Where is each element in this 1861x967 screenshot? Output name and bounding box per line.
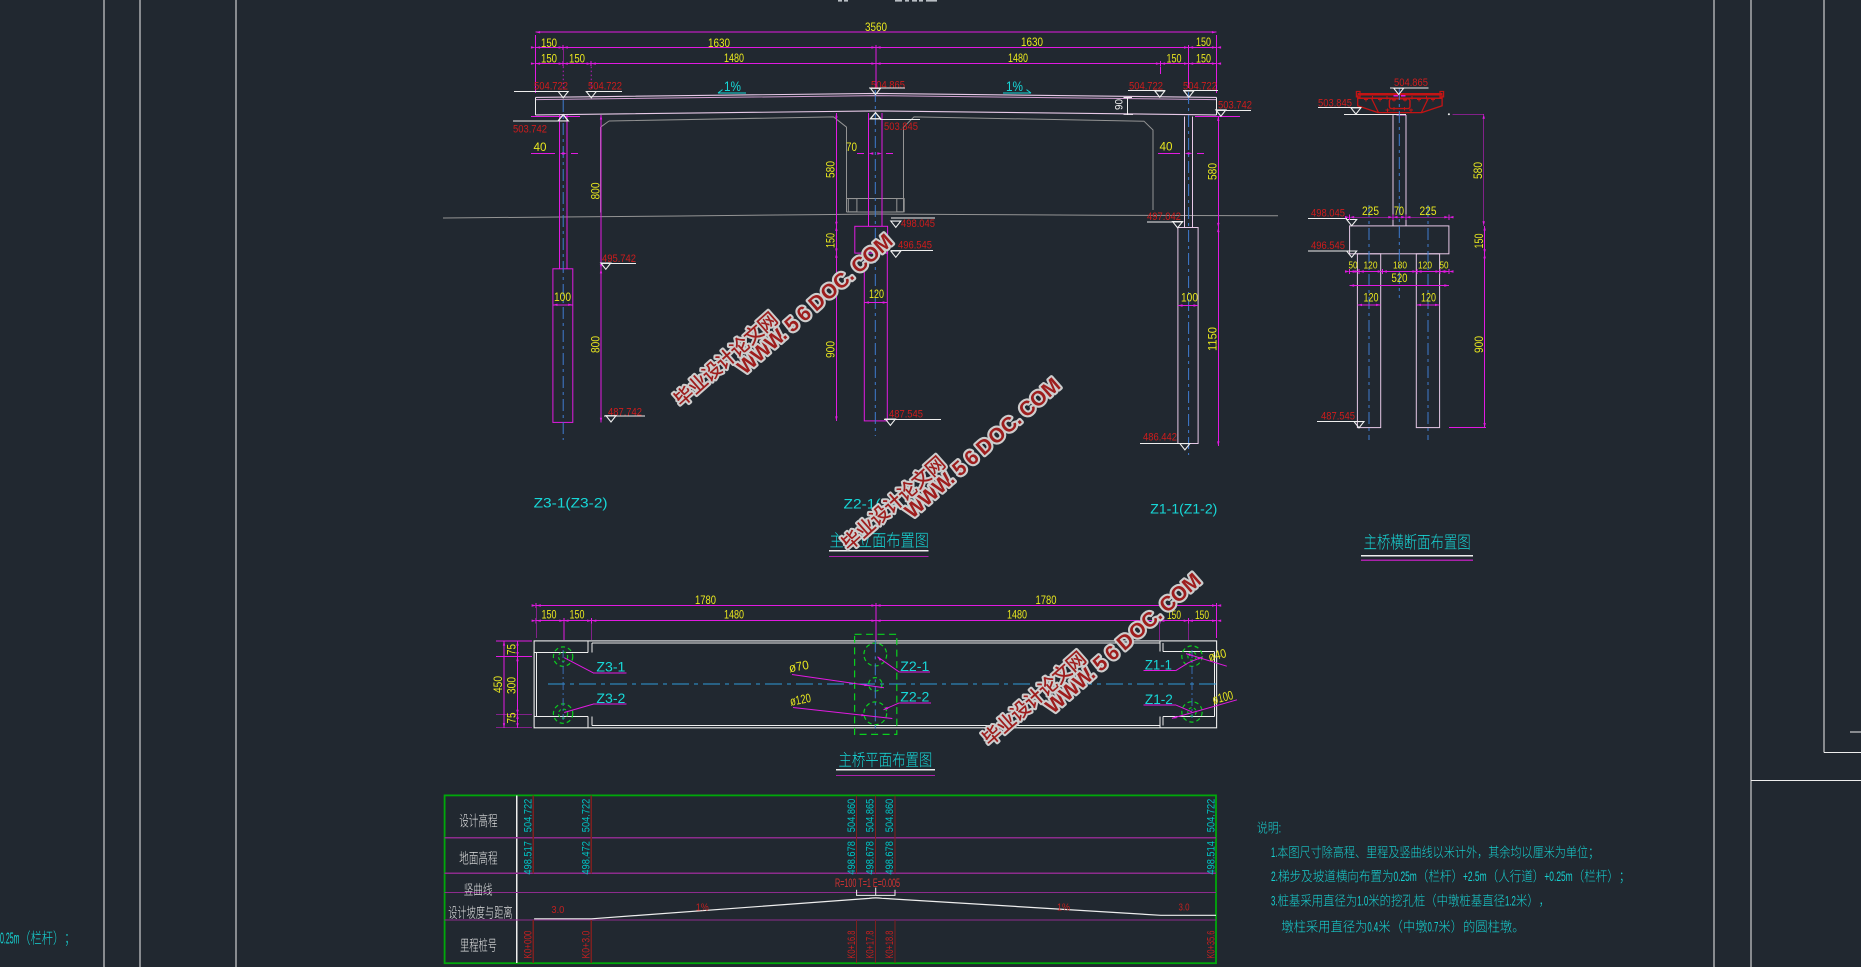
svg-text:150: 150: [1195, 608, 1209, 622]
svg-text:3.0: 3.0: [1179, 901, 1190, 913]
svg-text:K0+35.6: K0+35.6: [1205, 931, 1217, 959]
svg-text:1480: 1480: [1008, 51, 1028, 65]
svg-text:580: 580: [1206, 163, 1220, 180]
svg-text:150: 150: [1196, 52, 1211, 66]
svg-text:Z1-2: Z1-2: [1145, 691, 1173, 707]
svg-text:498.678: 498.678: [846, 841, 858, 875]
svg-text:0.7: 0.7: [1428, 919, 1439, 935]
svg-text:1630: 1630: [1021, 35, 1043, 49]
svg-text:1%: 1%: [696, 902, 709, 914]
svg-text:498.045: 498.045: [1311, 207, 1345, 219]
svg-text:150: 150: [541, 36, 557, 50]
svg-text:520: 520: [1392, 271, 1408, 285]
svg-text:580: 580: [1471, 162, 1485, 179]
svg-text:150: 150: [1472, 233, 1486, 248]
svg-text:498.678: 498.678: [865, 841, 877, 875]
svg-text:70: 70: [846, 140, 857, 154]
svg-text:K0+17.8: K0+17.8: [865, 931, 877, 959]
svg-text:504.860: 504.860: [884, 799, 896, 833]
svg-text:800: 800: [589, 336, 603, 353]
svg-text:Z3-2: Z3-2: [596, 690, 625, 706]
svg-text:0.4: 0.4: [1367, 919, 1378, 935]
svg-text::: :: [1279, 821, 1281, 836]
svg-text:498.472: 498.472: [581, 841, 593, 875]
svg-text:503.845: 503.845: [884, 121, 918, 133]
svg-text:75: 75: [505, 712, 519, 723]
svg-text:Z1-1(Z1-2): Z1-1(Z1-2): [1150, 501, 1217, 517]
svg-text:1%: 1%: [1057, 902, 1070, 914]
svg-text:90: 90: [1114, 99, 1126, 110]
svg-text:120: 120: [1364, 259, 1378, 271]
svg-text:486.442: 486.442: [1143, 432, 1177, 444]
svg-text:1630: 1630: [708, 36, 730, 50]
svg-text:150: 150: [569, 52, 585, 66]
svg-text:496.545: 496.545: [1311, 240, 1345, 252]
svg-text:100: 100: [1181, 291, 1198, 305]
svg-text:504.860: 504.860: [846, 799, 858, 833]
svg-text:900: 900: [1472, 336, 1486, 353]
svg-text:504.722: 504.722: [522, 799, 534, 833]
svg-text:300: 300: [505, 677, 519, 694]
svg-text:498.678: 498.678: [884, 841, 896, 875]
svg-text:100: 100: [554, 290, 571, 304]
svg-text:504.865: 504.865: [871, 80, 905, 92]
svg-text:70: 70: [1394, 204, 1404, 218]
svg-text:120: 120: [1421, 291, 1436, 305]
svg-text:40: 40: [534, 140, 547, 154]
svg-text:0.25m: 0.25m: [1394, 868, 1417, 884]
svg-text:150: 150: [824, 233, 838, 248]
svg-text:120: 120: [1418, 259, 1432, 271]
svg-text:+0.25m: +0.25m: [1544, 868, 1572, 884]
svg-text:1%: 1%: [1006, 79, 1023, 94]
svg-text:1780: 1780: [695, 593, 716, 607]
svg-text:150: 150: [1167, 52, 1182, 66]
svg-text:180: 180: [1393, 259, 1407, 271]
svg-text:150: 150: [1196, 35, 1211, 49]
svg-text:0.25m: 0.25m: [0, 931, 19, 948]
svg-text:Z2-1: Z2-1: [900, 658, 929, 674]
svg-text:450: 450: [491, 676, 505, 693]
svg-text:498.517: 498.517: [522, 841, 534, 875]
svg-text:504.722: 504.722: [588, 81, 622, 93]
svg-text:K0+3.0: K0+3.0: [581, 931, 593, 959]
svg-text:504.865: 504.865: [1394, 77, 1428, 89]
svg-text:K0+000: K0+000: [522, 931, 534, 959]
svg-text:1.: 1.: [1271, 844, 1277, 860]
svg-text:1%: 1%: [724, 79, 741, 94]
svg-text:40: 40: [1160, 140, 1173, 154]
svg-text:800: 800: [589, 182, 603, 199]
svg-text:487.545: 487.545: [1321, 411, 1355, 423]
svg-text:225: 225: [1420, 204, 1437, 218]
svg-text:150: 150: [570, 608, 585, 622]
svg-text:497.042: 497.042: [1147, 211, 1181, 223]
svg-text:504.722: 504.722: [581, 799, 593, 833]
svg-text:504.722: 504.722: [534, 81, 568, 93]
svg-text:498.045: 498.045: [901, 218, 935, 230]
svg-text:580: 580: [824, 161, 838, 178]
svg-text:2.: 2.: [1271, 868, 1278, 884]
svg-text:225: 225: [1362, 204, 1379, 218]
svg-text:120: 120: [869, 287, 884, 301]
svg-text:Z1-1: Z1-1: [1145, 657, 1172, 673]
svg-text:1780: 1780: [1036, 593, 1057, 607]
svg-text:50: 50: [1349, 259, 1358, 271]
svg-text:504.865: 504.865: [865, 799, 877, 833]
svg-text:1150: 1150: [1206, 327, 1220, 351]
svg-text:1480: 1480: [1007, 608, 1027, 622]
svg-text:150: 150: [542, 608, 557, 622]
svg-text:3560: 3560: [865, 20, 887, 34]
svg-text:R=100 T=1 E=0.005: R=100 T=1 E=0.005: [835, 878, 900, 890]
svg-text:1.0: 1.0: [1357, 893, 1368, 909]
svg-text:75: 75: [505, 644, 519, 655]
svg-text:Z3-1: Z3-1: [596, 659, 625, 675]
svg-text:1480: 1480: [724, 608, 744, 622]
svg-text:900: 900: [824, 341, 838, 358]
svg-text:1480: 1480: [724, 51, 744, 65]
svg-text:503.742: 503.742: [513, 124, 547, 136]
svg-text:50: 50: [1440, 259, 1449, 271]
svg-text:K0+18.8: K0+18.8: [884, 931, 896, 959]
svg-text:K0+16.8: K0+16.8: [846, 931, 858, 959]
svg-text:498.514: 498.514: [1205, 841, 1217, 875]
svg-text:150: 150: [541, 52, 557, 66]
svg-text:3.: 3.: [1271, 893, 1278, 909]
svg-text:1.2: 1.2: [1505, 893, 1516, 909]
svg-text:+2.5m: +2.5m: [1463, 868, 1487, 884]
svg-text:3.0: 3.0: [551, 904, 564, 916]
svg-text:Z3-1(Z3-2): Z3-1(Z3-2): [534, 495, 608, 511]
svg-text:504.722: 504.722: [1205, 799, 1217, 833]
svg-text:Z2-2: Z2-2: [900, 689, 929, 705]
svg-text:120: 120: [1364, 291, 1379, 305]
